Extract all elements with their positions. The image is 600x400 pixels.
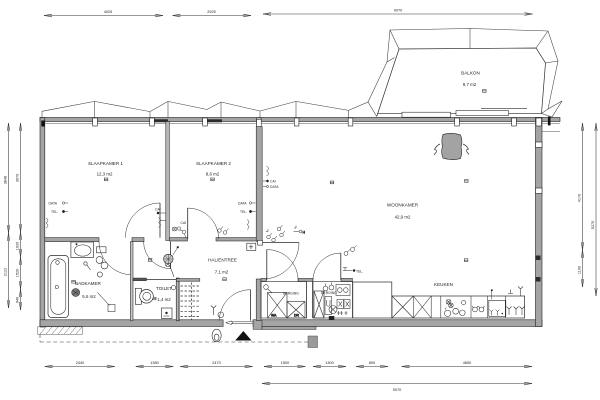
svg-text:BERGING: BERGING [283, 292, 299, 296]
svg-text:9070: 9070 [394, 9, 402, 13]
svg-text:1300: 1300 [325, 361, 333, 365]
svg-text:2470: 2470 [212, 361, 220, 365]
svg-text:BALKON: BALKON [461, 71, 480, 76]
svg-text:WA: WA [271, 314, 277, 318]
svg-text:2925: 2925 [207, 10, 215, 14]
svg-text:940: 940 [16, 297, 20, 303]
svg-text:4170: 4170 [578, 194, 582, 202]
svg-text:TEL.: TEL. [240, 210, 247, 214]
svg-text:CAI: CAI [181, 221, 187, 225]
svg-text:DR: DR [294, 314, 299, 318]
svg-text:CAI: CAI [155, 208, 161, 212]
svg-text:2440: 2440 [76, 361, 84, 365]
svg-text:TEL.: TEL. [51, 210, 58, 214]
svg-text:SLAAPKAMER 1: SLAAPKAMER 1 [88, 161, 123, 166]
svg-text:BADKAMER: BADKAMER [75, 281, 101, 286]
svg-text:TOILET: TOILET [156, 286, 172, 291]
svg-text:4025: 4025 [104, 10, 112, 14]
svg-text:WOONKAMER: WOONKAMER [387, 203, 419, 208]
svg-text:5,6 m2: 5,6 m2 [82, 294, 96, 299]
svg-text:1380: 1380 [150, 361, 158, 365]
svg-text:DATA: DATA [270, 185, 279, 189]
svg-text:8,6 m2: 8,6 m2 [206, 172, 220, 177]
svg-text:800: 800 [369, 361, 375, 365]
svg-text:42,9 m2: 42,9 m2 [395, 215, 411, 220]
svg-text:1100: 1100 [578, 266, 582, 274]
svg-text:9070: 9070 [393, 388, 401, 392]
svg-text:1020: 1020 [16, 242, 20, 250]
svg-text:2122: 2122 [4, 268, 8, 276]
svg-text:TEL.: TEL. [356, 270, 363, 274]
svg-text:3848: 3848 [4, 176, 8, 184]
svg-text:SLAAPKAMER 2: SLAAPKAMER 2 [196, 161, 231, 166]
svg-text:7,1 m2: 7,1 m2 [215, 270, 229, 275]
svg-text:1500: 1500 [281, 361, 289, 365]
svg-text:HAL/ENTREE: HAL/ENTREE [208, 258, 237, 263]
svg-text:4650: 4650 [463, 361, 471, 365]
svg-text:12,3 m2: 12,3 m2 [97, 172, 113, 177]
svg-text:3070: 3070 [16, 174, 20, 182]
svg-text:KEUKEN: KEUKEN [434, 282, 453, 287]
svg-text:1520: 1520 [16, 269, 20, 277]
svg-text:1,4 m2: 1,4 m2 [157, 297, 171, 302]
svg-text:CAI: CAI [270, 180, 276, 184]
svg-text:9,7 m2: 9,7 m2 [463, 82, 477, 87]
svg-text:DATA: DATA [49, 202, 58, 206]
svg-text:DATA: DATA [238, 202, 247, 206]
svg-text:5270: 5270 [591, 221, 595, 229]
